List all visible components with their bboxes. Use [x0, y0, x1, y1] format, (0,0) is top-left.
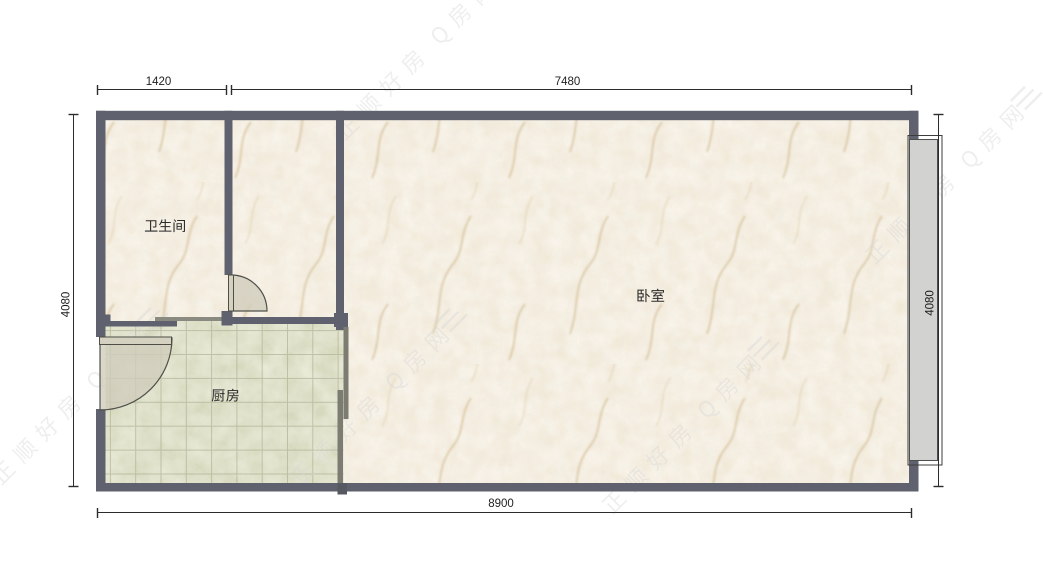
svg-text:8900: 8900: [488, 498, 514, 510]
svg-text:4080: 4080: [925, 290, 937, 316]
svg-text:1420: 1420: [146, 76, 172, 88]
svg-text:7480: 7480: [555, 76, 581, 88]
svg-text:4080: 4080: [61, 292, 73, 318]
